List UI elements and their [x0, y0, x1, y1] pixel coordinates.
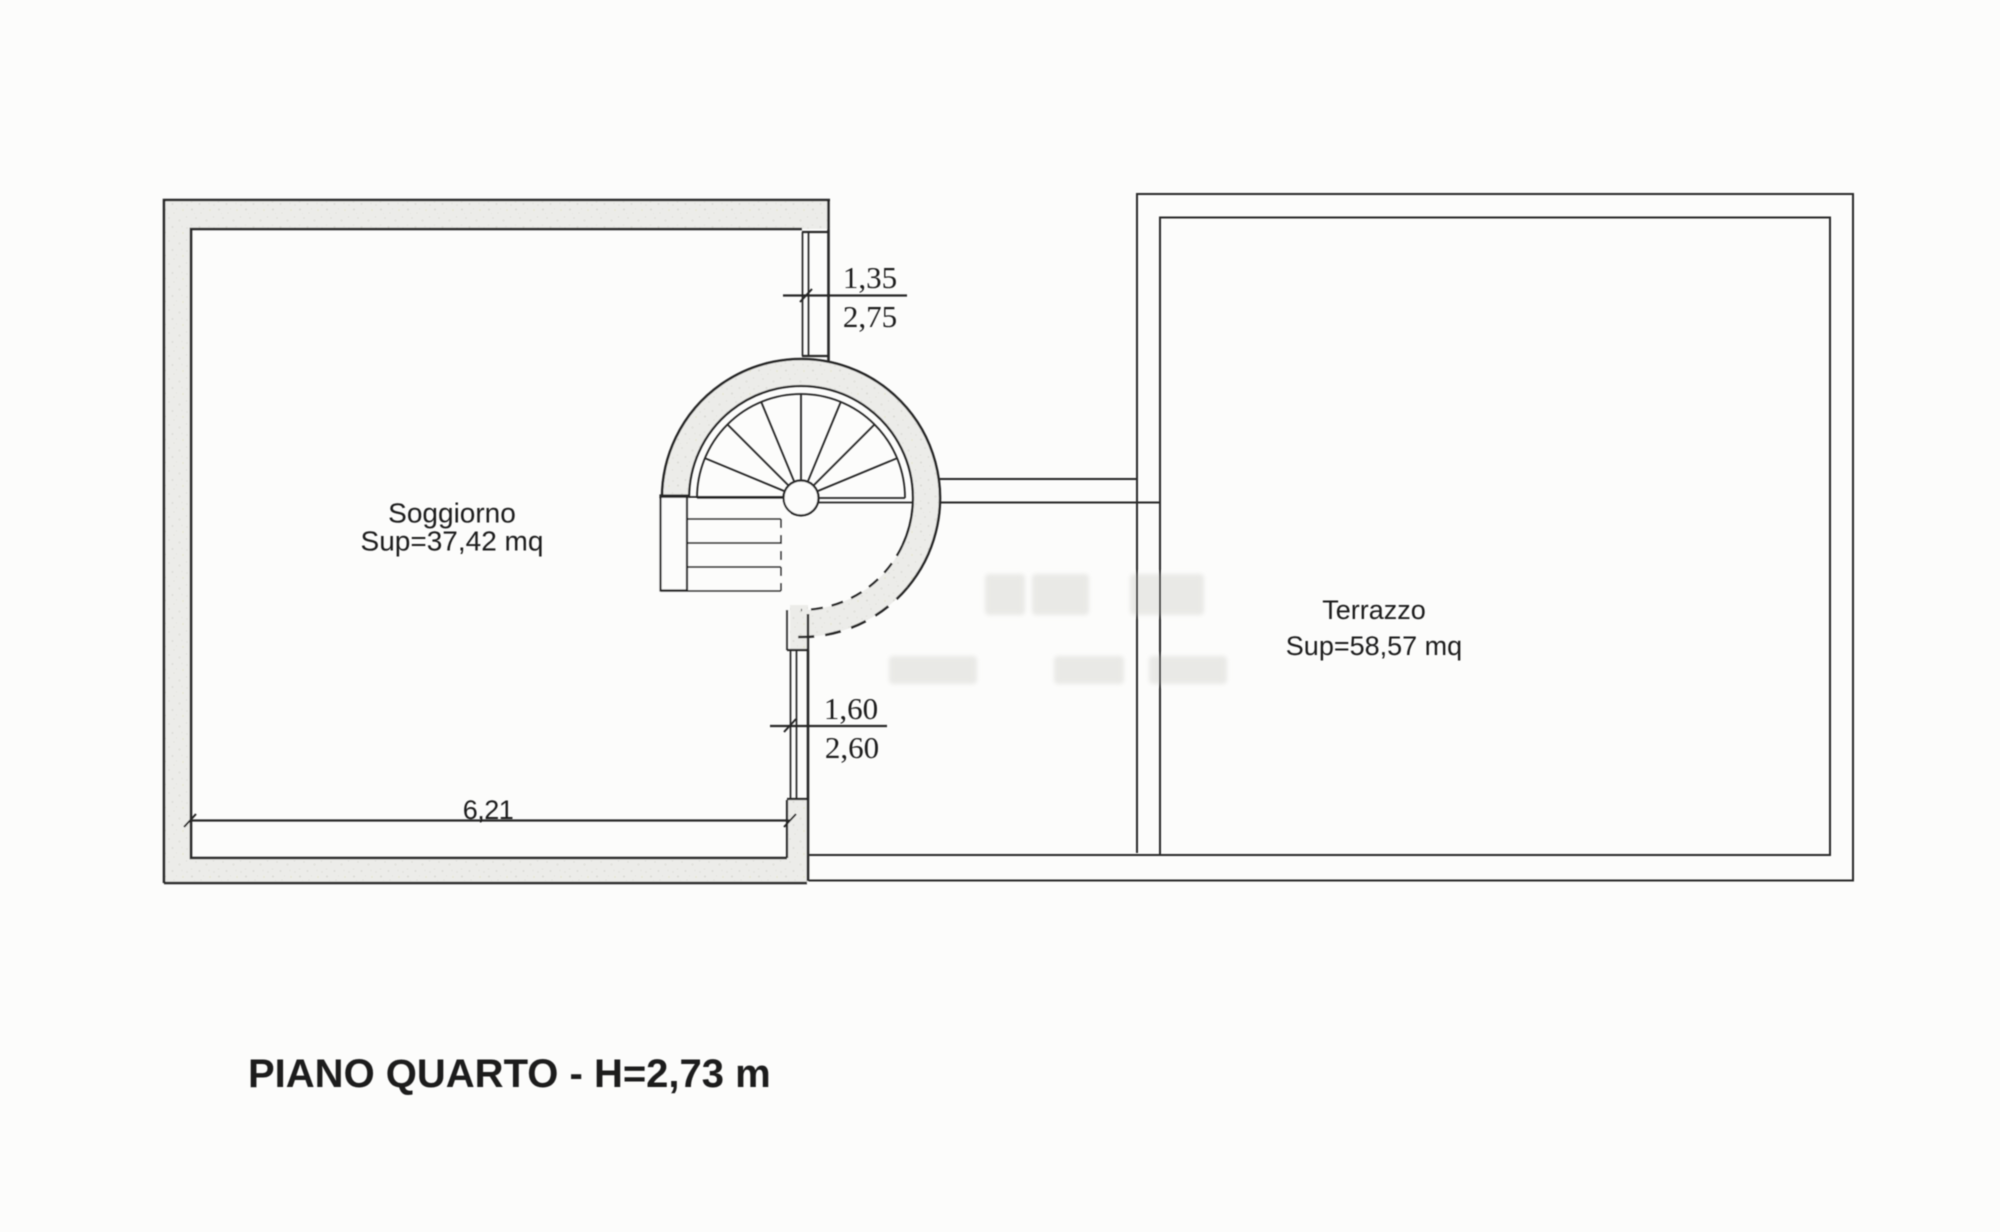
svg-text:Soggiorno: Soggiorno: [388, 498, 516, 529]
svg-text:1,35: 1,35: [843, 260, 897, 295]
svg-text:Sup=37,42 mq: Sup=37,42 mq: [361, 526, 544, 557]
svg-text:2,60: 2,60: [825, 730, 879, 765]
svg-text:Sup=58,57 mq: Sup=58,57 mq: [1286, 631, 1462, 661]
svg-text:6,21: 6,21: [463, 795, 514, 825]
svg-text:PIANO QUARTO - H=2,73 m: PIANO QUARTO - H=2,73 m: [248, 1052, 771, 1096]
svg-text:2,75: 2,75: [843, 299, 897, 334]
svg-text:1,60: 1,60: [824, 691, 878, 726]
svg-text:Terrazzo: Terrazzo: [1322, 595, 1426, 625]
